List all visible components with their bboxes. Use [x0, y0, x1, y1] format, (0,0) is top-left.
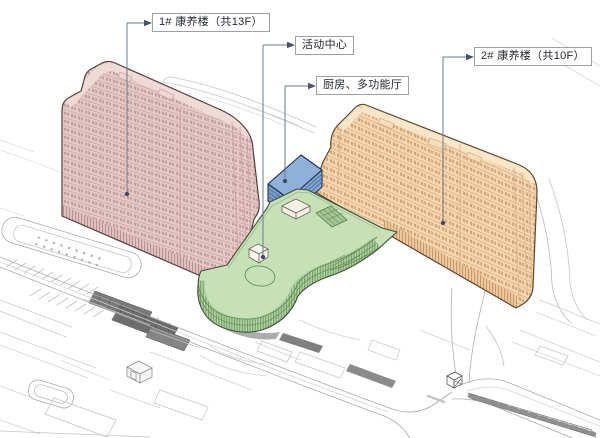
- truck-icon: [447, 372, 462, 388]
- label-activity-center: 活动中心: [295, 36, 354, 55]
- site-plan-diagram: 1# 康养楼（共13F） 活动中心 厨房、多功能厅 2# 康养楼（共10F） c…: [0, 0, 600, 438]
- label-building1: 1# 康养楼（共13F）: [152, 13, 270, 32]
- building2-facade: [312, 100, 542, 312]
- label-kitchen-hall: 厨房、多功能厅: [316, 76, 409, 95]
- label-building2: 2# 康养楼（共10F）: [474, 47, 592, 66]
- covered-walkway: [85, 291, 200, 351]
- building2-tower: [312, 100, 542, 312]
- plaza-right: [512, 330, 600, 376]
